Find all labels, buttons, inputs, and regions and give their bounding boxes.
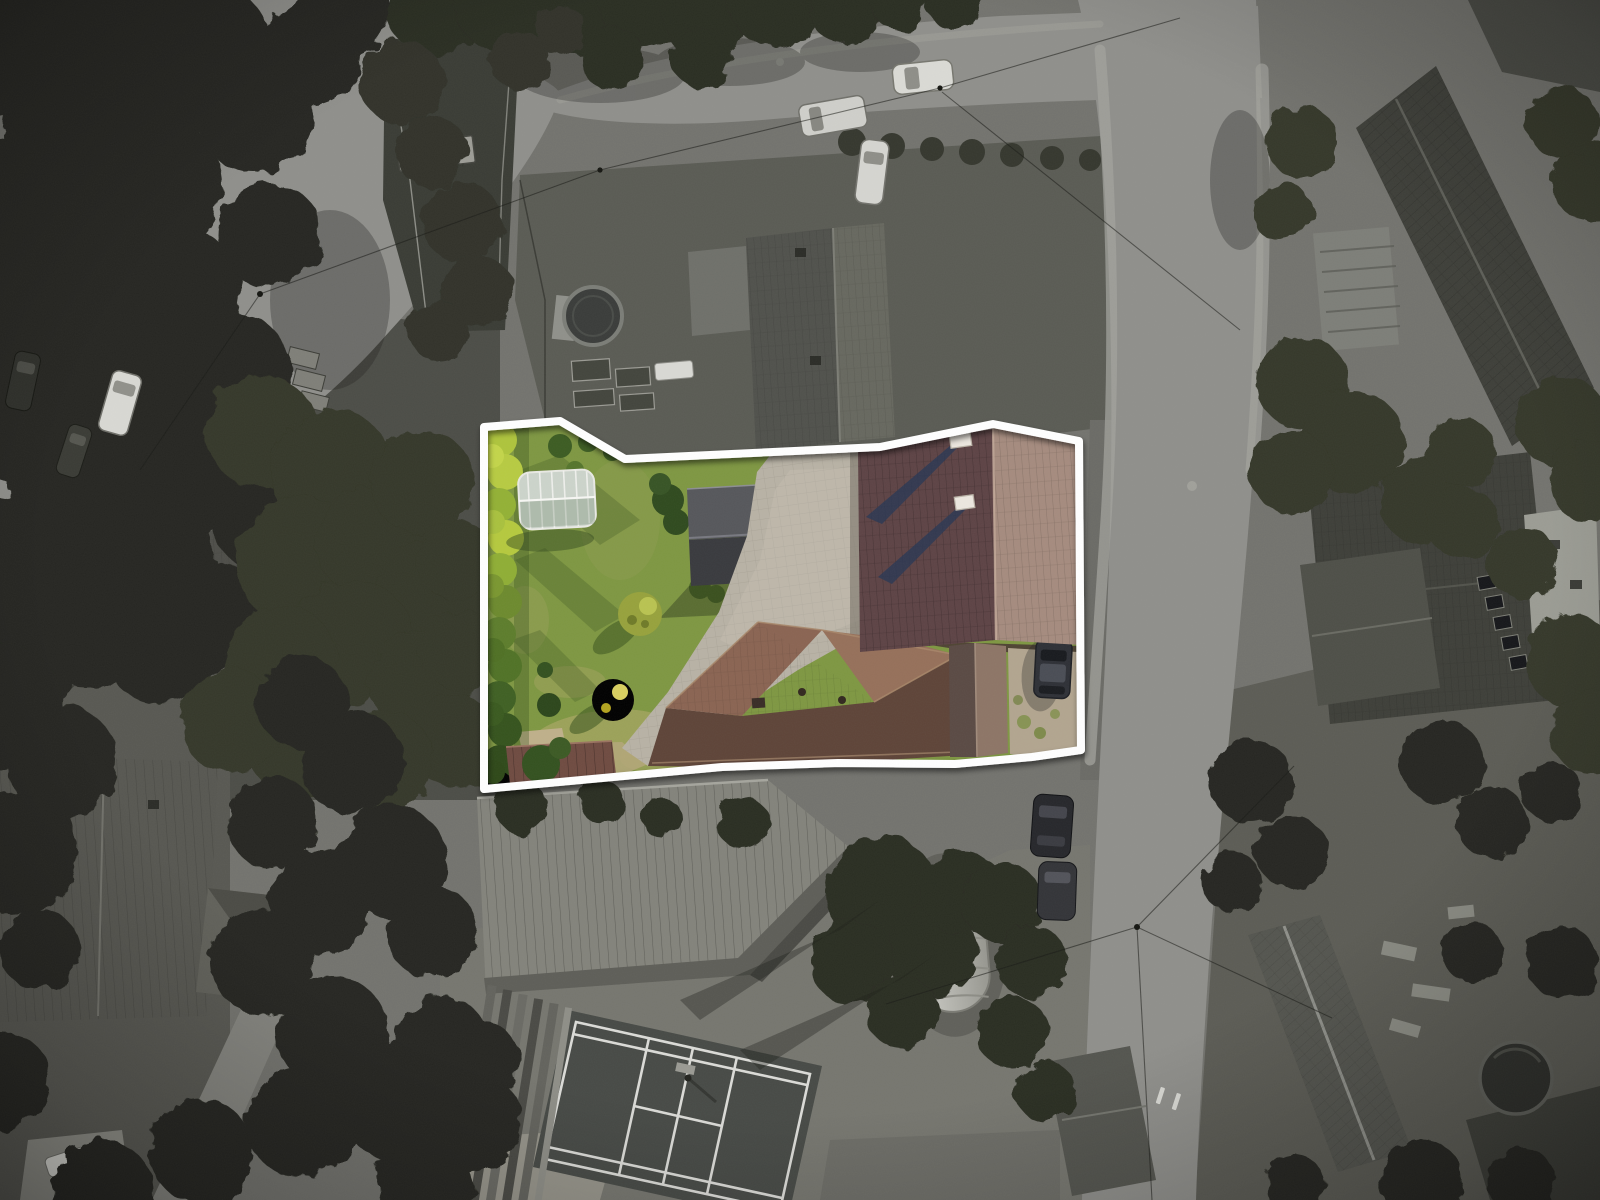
aerial-photo-viewport: Aerial drone photograph of a residential… xyxy=(0,0,1600,1200)
aerial-photo: Aerial drone photograph of a residential… xyxy=(0,0,1600,1200)
vignette xyxy=(0,0,1600,1200)
